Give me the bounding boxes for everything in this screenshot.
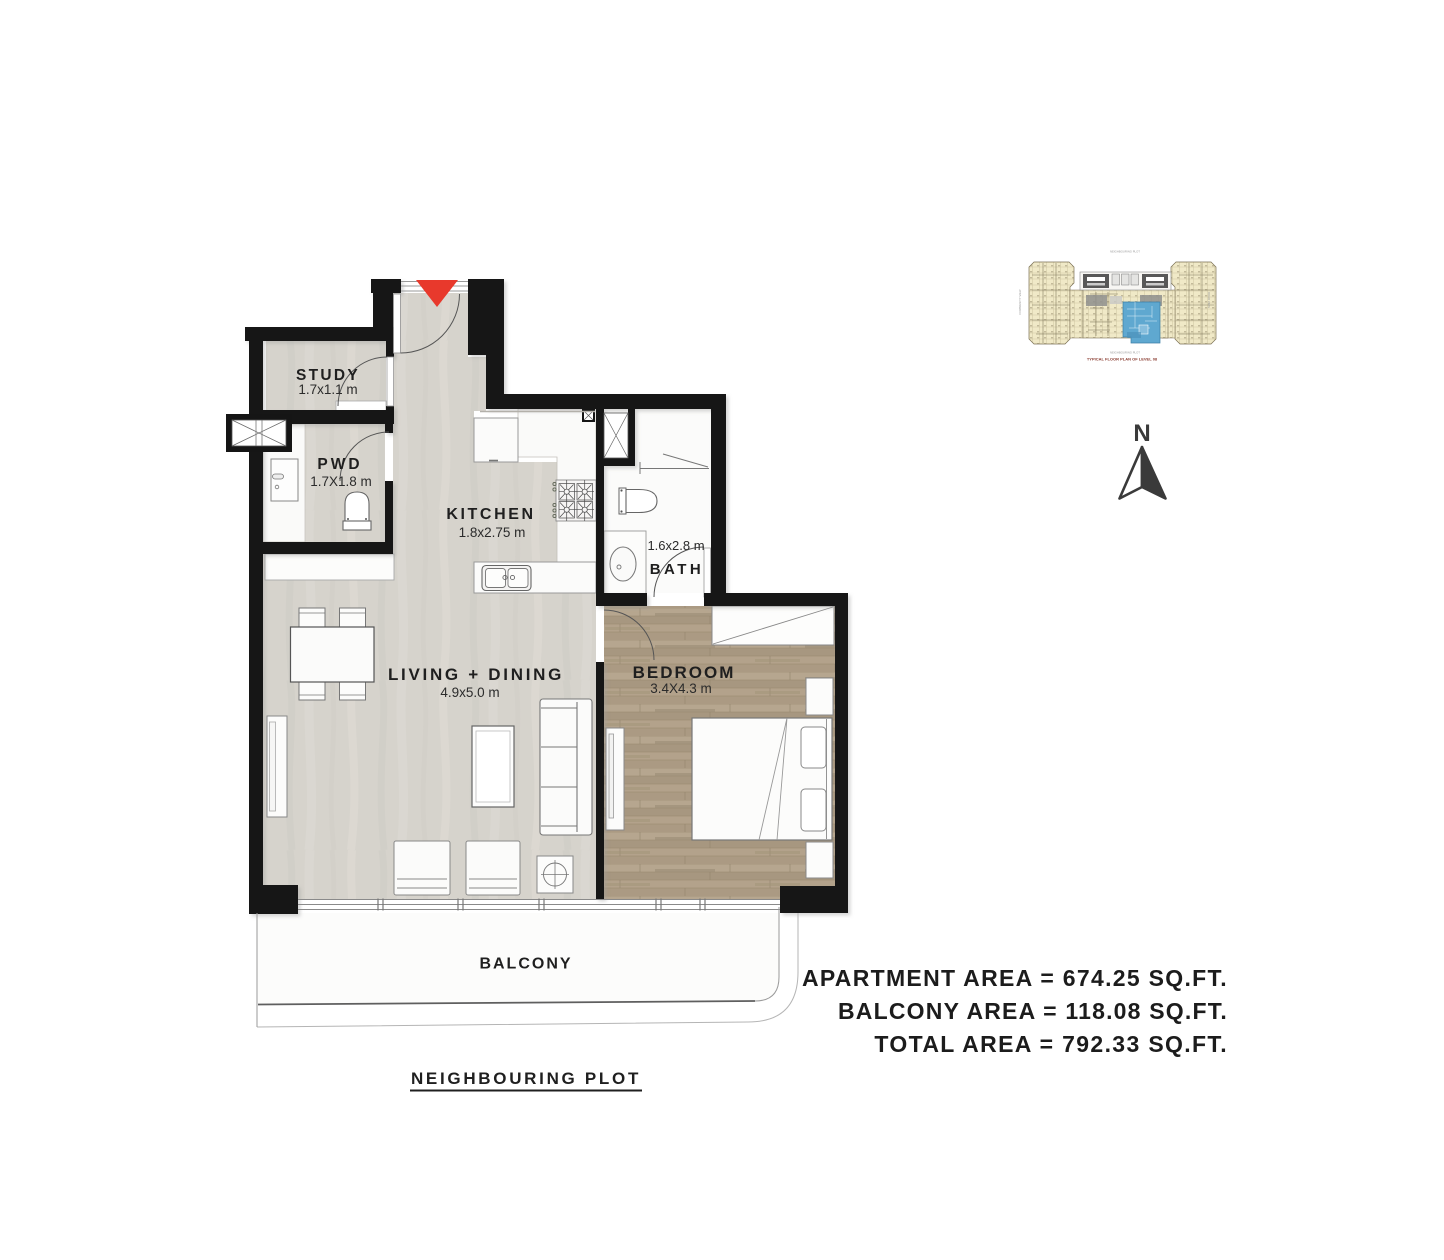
- svg-text:KITCHEN: KITCHEN: [446, 506, 535, 523]
- svg-text:NEIGHBOURING PLOT: NEIGHBOURING PLOT: [1110, 250, 1140, 254]
- svg-text:TOTAL AREA = 792.33 SQ.FT.: TOTAL AREA = 792.33 SQ.FT.: [874, 1031, 1228, 1057]
- svg-text:1.7X1.8 m: 1.7X1.8 m: [310, 474, 372, 489]
- svg-text:LIVING + DINING: LIVING + DINING: [388, 665, 564, 684]
- svg-text:APARTMENT AREA = 674.25 SQ.FT.: APARTMENT AREA = 674.25 SQ.FT.: [802, 965, 1228, 991]
- svg-text:N: N: [1133, 420, 1150, 447]
- svg-text:NEIGHBOURING PLOT: NEIGHBOURING PLOT: [1110, 351, 1140, 355]
- svg-text:1.8x2.75 m: 1.8x2.75 m: [459, 525, 526, 540]
- svg-text:4.9x5.0 m: 4.9x5.0 m: [440, 685, 499, 700]
- svg-text:1.6x2.8 m: 1.6x2.8 m: [647, 538, 704, 553]
- svg-text:COMMUNITY VIEW: COMMUNITY VIEW: [1018, 289, 1022, 314]
- svg-text:BALCONY AREA = 118.08 SQ.FT.: BALCONY AREA = 118.08 SQ.FT.: [838, 998, 1228, 1024]
- svg-text:PWD: PWD: [317, 456, 362, 473]
- svg-text:1.7x1.1 m: 1.7x1.1 m: [298, 382, 357, 397]
- svg-text:BALCONY: BALCONY: [479, 956, 572, 973]
- svg-text:NEIGHBOURING PLOT: NEIGHBOURING PLOT: [411, 1069, 641, 1088]
- svg-text:BEDROOM: BEDROOM: [633, 663, 736, 682]
- svg-text:ROAD VIEW: ROAD VIEW: [1207, 292, 1211, 308]
- svg-text:3.4X4.3 m: 3.4X4.3 m: [650, 681, 712, 696]
- svg-text:TYPICAL FLOOR PLAN OF LEVEL 08: TYPICAL FLOOR PLAN OF LEVEL 08: [1087, 357, 1158, 362]
- svg-text:BATH: BATH: [650, 561, 705, 578]
